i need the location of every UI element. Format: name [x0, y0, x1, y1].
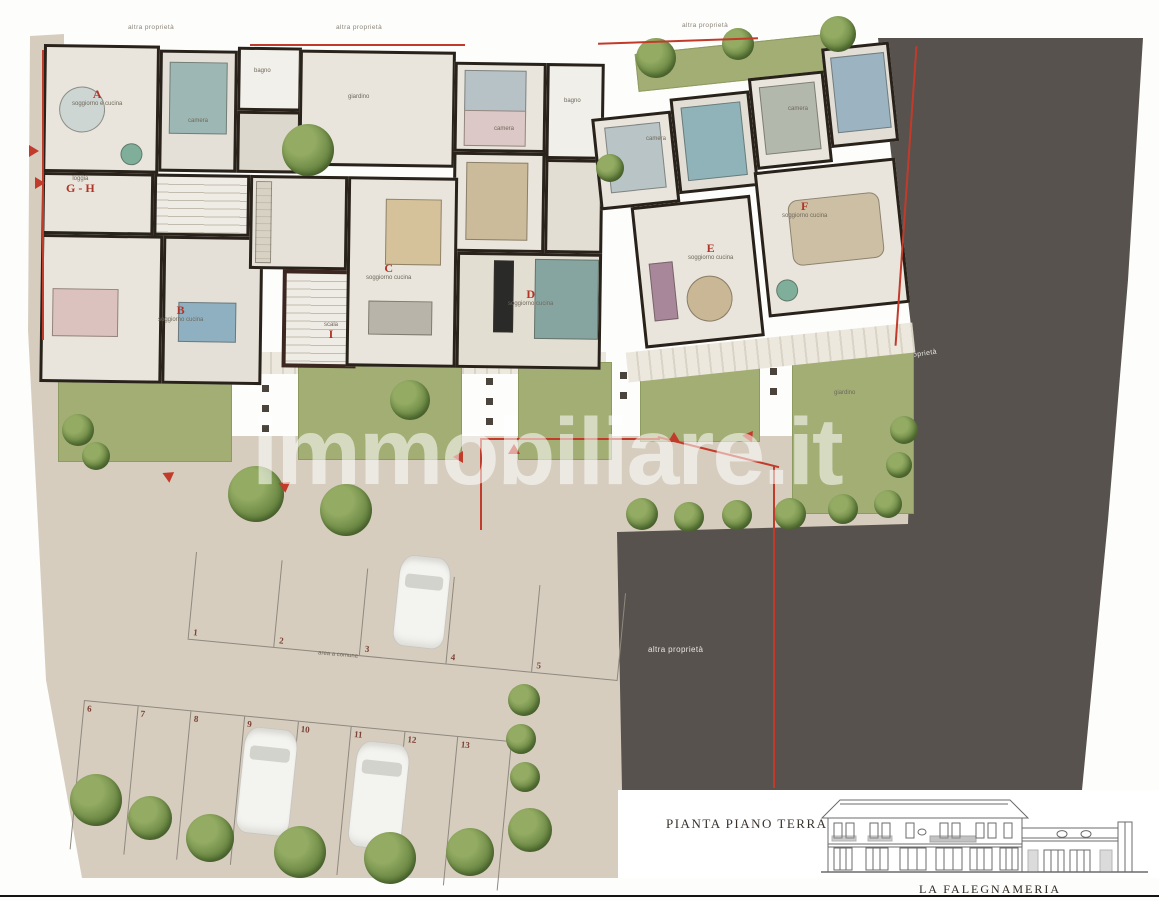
bed	[680, 101, 747, 181]
boundary-line	[42, 50, 44, 340]
plan-title: PIANTA PIANO TERRA	[666, 816, 828, 832]
parking-stall: 4	[446, 577, 540, 672]
building-right-wing	[575, 27, 931, 399]
apartment-label-d: D soggiorno cucina	[508, 288, 553, 307]
room-label: bagno	[564, 98, 581, 105]
tree	[722, 28, 754, 60]
bed	[52, 288, 119, 337]
watermark: immobiliare.it	[252, 398, 842, 507]
hedge	[62, 414, 94, 446]
apartment-label-gh: loggia G - H	[66, 176, 95, 195]
floor-plan-canvas: altra proprietà altra proprietà altra pr…	[0, 0, 1159, 901]
project-caption: LA FALEGNAMERIA	[840, 882, 1140, 897]
apartment-label-b: B soggiorno cucina	[158, 304, 203, 323]
tree	[636, 38, 676, 78]
room-label: bagno	[254, 68, 271, 75]
apartment-label-i: scala I	[324, 322, 338, 341]
hedge	[510, 762, 540, 792]
boundary-line	[250, 44, 465, 46]
hedge	[128, 796, 172, 840]
hedge	[364, 832, 416, 884]
hedge	[874, 490, 902, 518]
apartment-label-c: C soggiorno cucina	[366, 262, 411, 281]
bed	[759, 81, 822, 154]
bed	[465, 162, 528, 241]
parked-car	[235, 725, 300, 837]
room-gh-lobby	[41, 172, 154, 236]
building-elevation-drawing	[818, 792, 1153, 878]
entrance-marker-icon	[29, 145, 39, 157]
apartment-label-f: F soggiorno cucina	[782, 200, 827, 219]
hedge	[274, 826, 326, 878]
hedge	[890, 416, 918, 444]
dining-table	[385, 199, 442, 266]
boundary-line	[773, 466, 775, 788]
room-label: camera	[494, 126, 514, 133]
hedge	[886, 452, 912, 478]
plant	[596, 154, 624, 182]
hedge	[506, 724, 536, 754]
hedge	[508, 808, 552, 852]
stairwell-gh	[153, 174, 250, 237]
entrance-marker-icon	[35, 177, 45, 189]
parking-stall: 1	[188, 552, 283, 647]
room-label: camera	[188, 118, 208, 125]
hedge	[446, 828, 494, 876]
hedge	[70, 774, 122, 826]
room-label: camera	[646, 136, 666, 143]
parked-car	[391, 554, 452, 651]
hedge	[508, 684, 540, 716]
wardrobe	[255, 181, 272, 263]
tree	[282, 124, 334, 176]
bed	[830, 52, 892, 133]
room-label: giardino	[834, 390, 855, 397]
parking-stall: 2	[274, 560, 368, 655]
tree	[820, 16, 856, 52]
room-a-bath	[237, 47, 302, 112]
sofa	[368, 301, 432, 336]
apartment-label-a: A soggiorno e cucina	[72, 88, 122, 107]
room-label: camera	[788, 106, 808, 113]
legend-panel: PIANTA PIANO TERRA	[618, 790, 1159, 878]
apartment-label-e: E soggiorno cucina	[688, 242, 733, 261]
hedge	[82, 442, 110, 470]
hedge	[186, 814, 234, 862]
parking-stall: 5	[532, 585, 626, 680]
room-label: giardino	[348, 94, 369, 101]
